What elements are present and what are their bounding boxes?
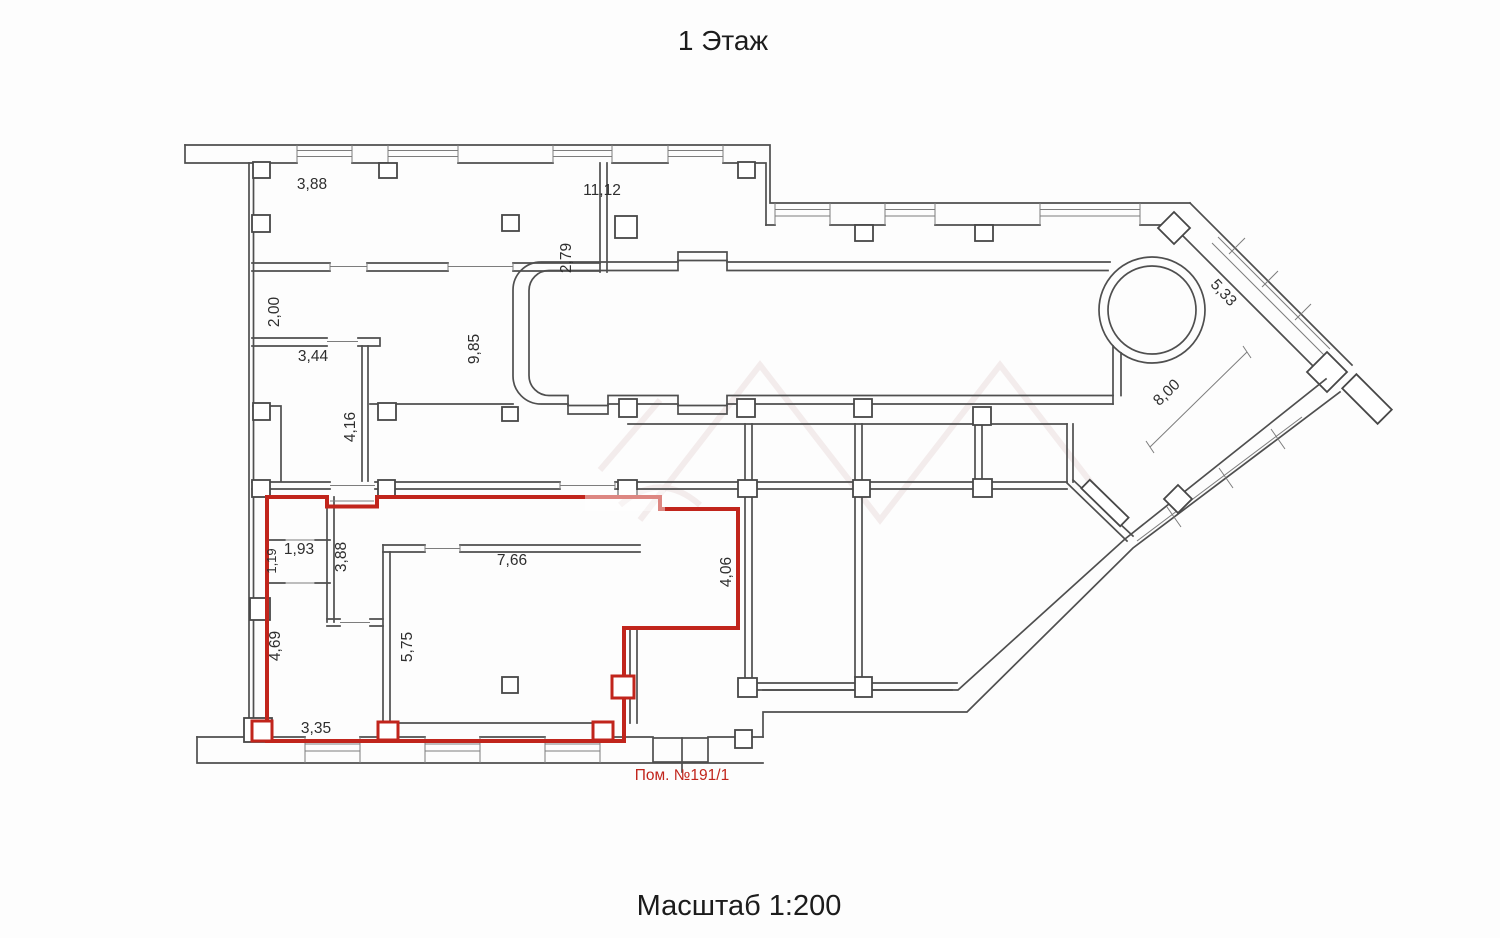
columns [244, 162, 1192, 748]
dimension-label: 4,69 [267, 631, 284, 661]
exterior-walls [185, 145, 1392, 772]
dimension-label: 2,79 [558, 243, 575, 273]
dimension-label: 11,12 [583, 182, 621, 199]
watermark-wash [585, 490, 665, 511]
dimension-label: 3,35 [301, 720, 331, 737]
selected-room-outline [252, 490, 738, 741]
floor-plan-drawing: 3,88 11,12 2,79 2,00 3,44 4,16 9,85 5,33… [0, 0, 1500, 938]
page-title: 1 Этаж [678, 25, 769, 56]
floor-plan-page: 3,88 11,12 2,79 2,00 3,44 4,16 9,85 5,33… [0, 0, 1500, 938]
wall-end-cap [1342, 374, 1392, 424]
dimension-label: 9,85 [466, 334, 483, 364]
dimension-label: 1,19 [264, 548, 279, 573]
dimension-label: 3,88 [297, 176, 327, 193]
stair-circle [1099, 257, 1205, 404]
dimension-label: 2,00 [266, 297, 283, 328]
dimension-label: 4,16 [342, 412, 359, 442]
dimension-label: 7,66 [497, 552, 527, 569]
dimension-label: 5,75 [399, 632, 416, 662]
selected-room-number-label: Пом. №191/1 [635, 767, 729, 784]
dimension-label: 1,93 [284, 541, 314, 558]
dimension-label: 3,88 [333, 542, 350, 572]
corridor-ring [513, 252, 1113, 414]
scale-label: Масштаб 1:200 [637, 890, 842, 922]
dimension-label: 4,06 [718, 557, 735, 587]
dimension-label: 8,00 [1150, 376, 1184, 409]
dimension-label: 3,44 [298, 348, 329, 365]
corner-column-diamond [1307, 352, 1347, 392]
dimension-label: 5,33 [1207, 276, 1240, 310]
